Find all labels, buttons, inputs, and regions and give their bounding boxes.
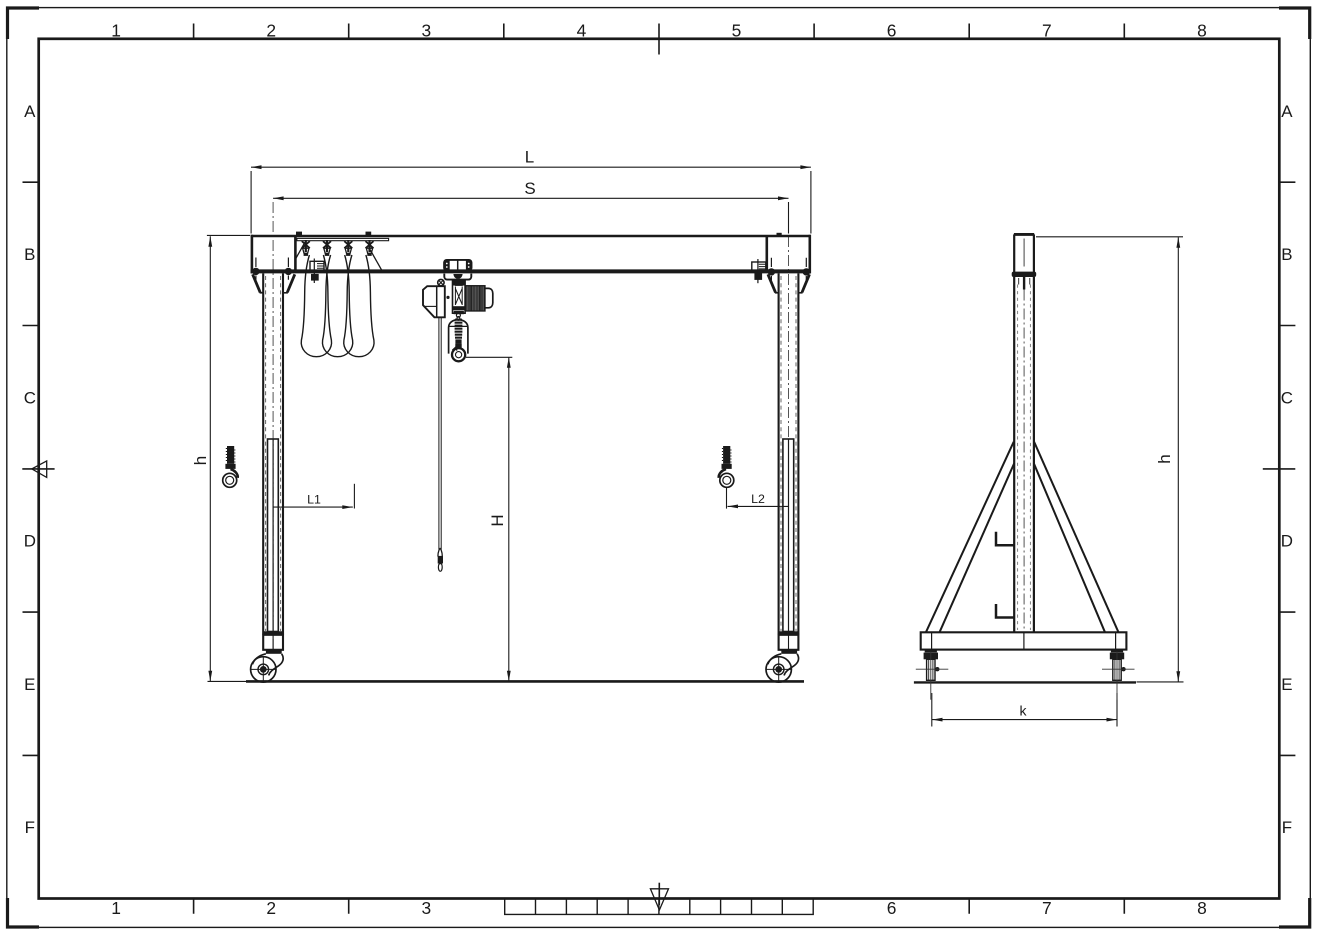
svg-text:B: B [1281,245,1292,264]
svg-text:h: h [191,456,210,465]
svg-text:F: F [25,818,35,837]
svg-text:H: H [488,514,507,526]
svg-text:S: S [524,179,535,198]
svg-text:D: D [24,532,36,551]
svg-text:D: D [1281,532,1293,551]
svg-text:3: 3 [421,21,431,41]
svg-text:1: 1 [111,21,121,41]
svg-text:E: E [1281,675,1292,694]
svg-text:8: 8 [1197,898,1207,918]
svg-text:L1: L1 [307,493,321,507]
svg-text:4: 4 [577,21,587,41]
svg-text:2: 2 [266,898,276,918]
svg-text:1: 1 [111,898,121,918]
svg-text:8: 8 [1197,21,1207,41]
svg-text:L2: L2 [751,492,765,506]
svg-text:2: 2 [266,21,276,41]
svg-text:L: L [525,148,534,167]
svg-text:F: F [1282,818,1292,837]
svg-text:A: A [1281,102,1293,121]
svg-text:B: B [24,245,35,264]
svg-text:k: k [1020,703,1028,719]
svg-text:6: 6 [887,898,897,918]
svg-text:A: A [24,102,36,121]
svg-text:6: 6 [887,21,897,41]
svg-text:5: 5 [732,21,742,41]
svg-text:C: C [24,388,36,407]
svg-text:E: E [24,675,35,694]
svg-text:7: 7 [1042,21,1052,41]
svg-text:3: 3 [421,898,431,918]
svg-text:7: 7 [1042,898,1052,918]
svg-text:h: h [1155,454,1174,463]
svg-text:C: C [1281,388,1293,407]
